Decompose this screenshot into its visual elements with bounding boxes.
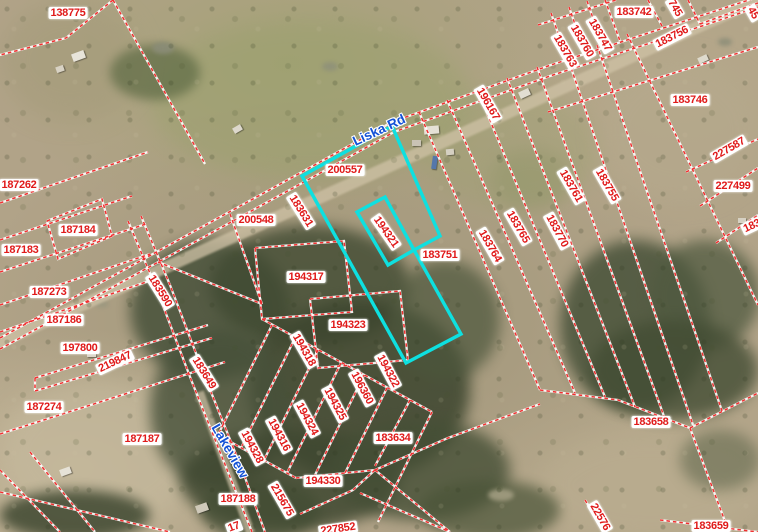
terrain-texture — [0, 0, 758, 532]
map-canvas[interactable]: 1387751837427454518375618374718376018376… — [0, 0, 758, 532]
